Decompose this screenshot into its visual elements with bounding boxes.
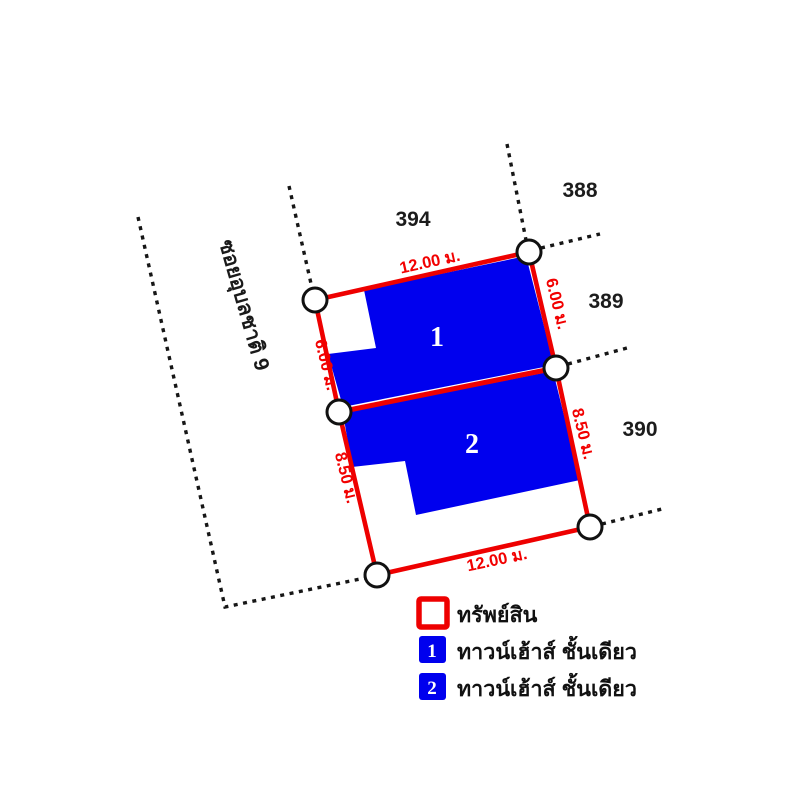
building-1-number-label: 1 bbox=[430, 322, 444, 353]
building-2-number-label: 2 bbox=[465, 429, 479, 460]
vertex-marker-top-right bbox=[517, 240, 541, 264]
legend: ทรัพย์สิน 1 ทาวน์เฮ้าส์ ชั้นเดียว 2 ทาวน… bbox=[419, 599, 637, 701]
legend-item-1-label: ทาวน์เฮ้าส์ ชั้นเดียว bbox=[457, 635, 637, 664]
parcel-number-390: 390 bbox=[622, 418, 657, 441]
north-west-boundary-dashed-line bbox=[289, 186, 312, 288]
east-middle-boundary-dashed-line bbox=[568, 348, 627, 364]
legend-property-label: ทรัพย์สิน bbox=[457, 602, 538, 627]
north-east-boundary-dashed-line bbox=[507, 144, 526, 240]
vertex-marker-top-left bbox=[303, 288, 327, 312]
legend-property-swatch bbox=[419, 599, 447, 627]
parcel-number-388: 388 bbox=[562, 179, 597, 202]
vertex-marker-bottom-right bbox=[578, 515, 602, 539]
parcel-number-389: 389 bbox=[588, 290, 623, 313]
road-name-label: ซอยอุบลชาติ 9 bbox=[212, 237, 273, 374]
plot-survey-diagram: 1 2 394 388 389 390 12.00 ม. 6.00 ม. 8.5… bbox=[0, 0, 800, 800]
vertex-marker-mid-right bbox=[544, 356, 568, 380]
east-upper-boundary-dashed-line bbox=[541, 234, 600, 248]
legend-item-2-number: 2 bbox=[427, 678, 437, 699]
parcel-number-394: 394 bbox=[395, 208, 430, 231]
vertex-marker-bottom-left bbox=[365, 563, 389, 587]
plot-survey-page: 1 2 394 388 389 390 12.00 ม. 6.00 ม. 8.5… bbox=[0, 0, 800, 800]
vertex-marker-mid-left bbox=[327, 400, 351, 424]
legend-item-2-label: ทาวน์เฮ้าส์ ชั้นเดียว bbox=[457, 672, 637, 701]
east-lower-boundary-dashed-line bbox=[602, 509, 662, 524]
legend-item-1-number: 1 bbox=[427, 641, 437, 662]
